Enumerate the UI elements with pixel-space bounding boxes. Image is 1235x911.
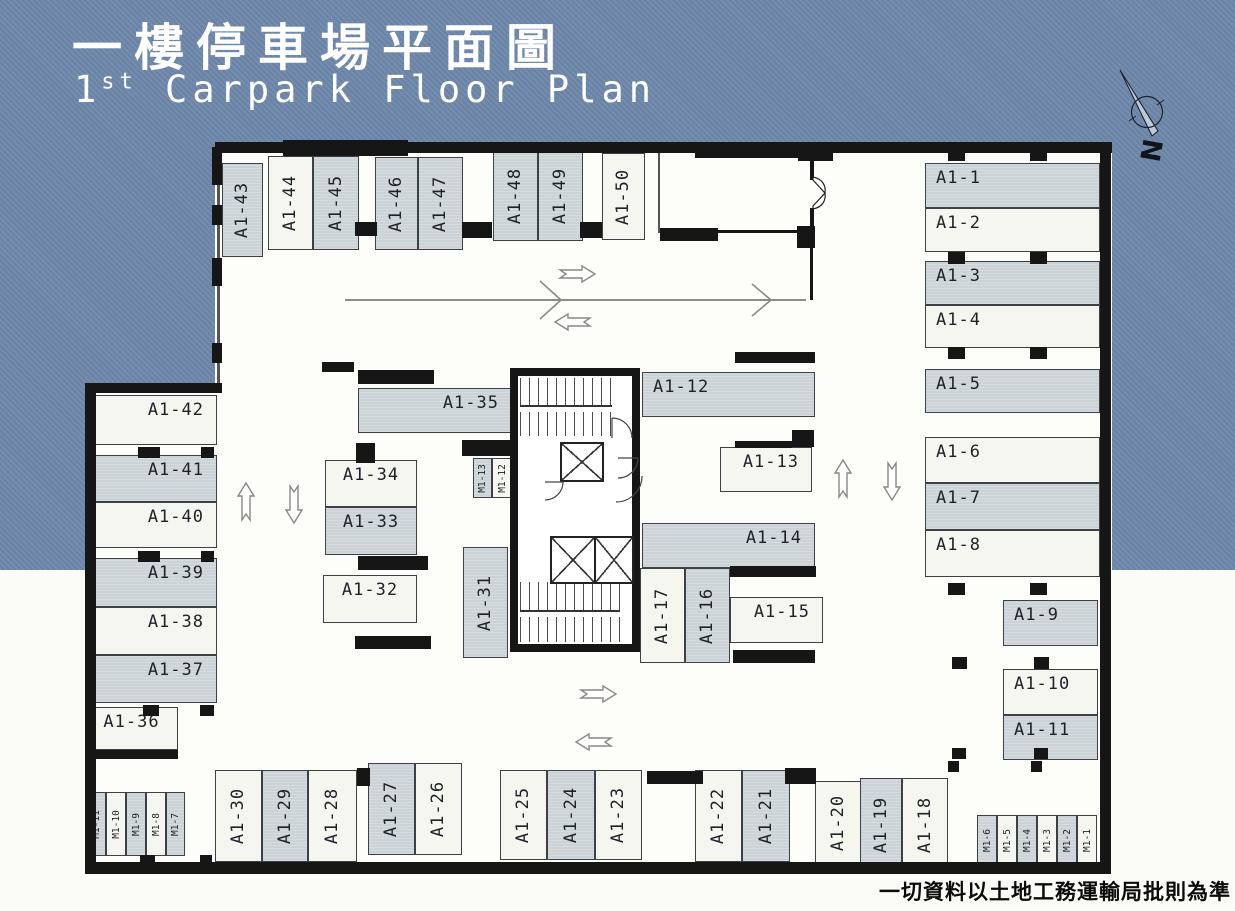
parking-space-label: A1-46 (387, 175, 407, 231)
parking-space-A1-15: A1-15 (730, 597, 823, 643)
wall-column-stub (322, 362, 354, 372)
parking-space-A1-7: A1-7 (925, 483, 1100, 530)
parking-space-label: M1-7 (170, 813, 181, 836)
parking-space-label: A1-20 (829, 795, 849, 851)
wall-column-stub (733, 650, 815, 663)
parking-space-label: A1-36 (86, 712, 177, 732)
parking-space-A1-4: A1-4 (925, 305, 1100, 348)
wall-segment (85, 862, 1111, 874)
wall-column-stub (948, 583, 965, 595)
parking-space-A1-43: A1-43 (222, 163, 263, 257)
parking-space-A1-3: A1-3 (925, 261, 1100, 305)
parking-space-A1-16: A1-16 (685, 568, 730, 663)
wall-column-stub (948, 252, 965, 264)
wall-column-stub (792, 430, 814, 447)
parking-space-A1-38: A1-38 (88, 607, 217, 655)
wall-column-stub (201, 551, 214, 562)
parking-space-label: A1-35 (443, 393, 499, 413)
parking-space-label: A1-6 (936, 442, 981, 462)
parking-space-A1-29: A1-29 (262, 770, 308, 862)
wall-column-stub (212, 258, 222, 286)
wall-column-stub (1030, 252, 1047, 264)
parking-space-M1-7: M1-7 (166, 792, 185, 856)
wall-column-stub (355, 636, 431, 649)
parking-space-label: M1-4 (1022, 829, 1033, 852)
wall-column-stub (1031, 761, 1042, 772)
parking-space-M1-4: M1-4 (1017, 815, 1037, 865)
parking-space-label: A1-24 (561, 787, 581, 843)
wall-column-stub (140, 855, 155, 867)
wall-column-stub (283, 140, 408, 156)
parking-space-A1-27: A1-27 (368, 763, 415, 855)
parking-space-M1-1: M1-1 (1077, 815, 1097, 865)
parking-space-label: A1-43 (233, 182, 253, 238)
title-number: 1 (74, 68, 101, 111)
wall-column-stub (948, 150, 965, 161)
parking-space-A1-48: A1-48 (493, 151, 538, 241)
parking-space-A1-39: A1-39 (88, 558, 217, 607)
parking-space-label: M1-3 (1042, 829, 1053, 852)
parking-space-label: A1-8 (936, 535, 981, 555)
wall-column-stub (212, 205, 222, 225)
parking-space-A1-37: A1-37 (88, 655, 217, 703)
parking-space-label: A1-47 (431, 175, 451, 231)
parking-space-A1-8: A1-8 (925, 530, 1100, 577)
parking-space-label: A1-41 (148, 460, 204, 480)
stairwell-bottom (520, 582, 620, 642)
parking-space-label: M1-10 (111, 810, 122, 839)
parking-space-label: A1-34 (326, 465, 416, 485)
parking-space-A1-14: A1-14 (642, 523, 815, 568)
parking-space-label: A1-11 (1014, 720, 1070, 740)
parking-space-A1-25: A1-25 (500, 770, 547, 860)
page-title-english: 1st Carpark Floor Plan (74, 68, 656, 111)
wall-column-stub (355, 222, 377, 236)
parking-space-A1-1: A1-1 (925, 163, 1100, 208)
parking-space-label: A1-37 (148, 660, 204, 680)
wall-column-stub (358, 556, 428, 570)
parking-space-label: A1-45 (326, 175, 346, 231)
wall-column-stub (1030, 150, 1047, 161)
elevator-2 (550, 536, 596, 584)
title-text: Carpark Floor Plan (138, 68, 656, 111)
elevator-3 (594, 536, 634, 584)
wall-column-stub (785, 768, 816, 784)
parking-space-A1-45: A1-45 (313, 156, 359, 250)
parking-space-A1-34: A1-34 (325, 460, 417, 507)
parking-space-label: A1-44 (281, 175, 301, 231)
parking-space-A1-49: A1-49 (538, 151, 583, 241)
title-ordinal-suffix: st (101, 70, 138, 95)
parking-space-M1-3: M1-3 (1037, 815, 1057, 865)
parking-space-label: A1-23 (609, 787, 629, 843)
wall-column-stub (138, 447, 160, 458)
parking-space-A1-41: A1-41 (88, 455, 217, 502)
parking-space-label: M1-12 (497, 464, 508, 493)
wall-column-stub (200, 855, 212, 867)
parking-space-label: A1-29 (275, 788, 295, 844)
parking-space-M1-12: M1-12 (492, 458, 512, 498)
parking-space-label: A1-33 (326, 512, 416, 532)
parking-space-A1-17: A1-17 (640, 568, 685, 663)
parking-space-label: A1-4 (936, 310, 981, 330)
parking-space-label: M1-2 (1062, 829, 1073, 852)
wall-column-stub (1034, 657, 1049, 669)
wall-column-stub (580, 222, 602, 238)
wall-column-stub (1030, 347, 1047, 359)
parking-space-label: A1-27 (382, 781, 402, 837)
wall-column-stub (462, 440, 512, 456)
parking-space-label: M1-8 (151, 813, 162, 836)
parking-space-M1-8: M1-8 (146, 792, 166, 856)
parking-space-label: A1-1 (936, 168, 981, 188)
parking-space-M1-10: M1-10 (106, 792, 126, 856)
wall-column-stub (462, 222, 492, 238)
parking-space-label: A1-39 (148, 563, 204, 583)
parking-space-A1-19: A1-19 (860, 778, 902, 872)
elevator-1 (560, 442, 604, 482)
parking-space-A1-12: A1-12 (642, 372, 815, 417)
parking-space-label: A1-42 (148, 400, 204, 420)
wall-column-stub (735, 441, 792, 448)
wall-segment (85, 383, 96, 874)
parking-space-label: A1-49 (551, 168, 571, 224)
parking-space-label: A1-31 (476, 574, 496, 630)
wall-column-stub (1034, 748, 1048, 759)
parking-space-A1-10: A1-10 (1003, 669, 1098, 715)
parking-space-label: M1-5 (1002, 829, 1013, 852)
parking-space-M1-5: M1-5 (997, 815, 1017, 865)
parking-space-A1-23: A1-23 (595, 770, 642, 860)
wall-column-stub (1030, 583, 1047, 595)
parking-space-A1-36: A1-36 (85, 707, 178, 750)
parking-space-label: A1-38 (148, 612, 204, 632)
parking-space-label: A1-17 (653, 587, 673, 643)
parking-space-label: A1-16 (698, 587, 718, 643)
stairwell-top (520, 378, 612, 436)
parking-space-A1-46: A1-46 (375, 157, 418, 250)
parking-space-label: A1-25 (514, 787, 534, 843)
parking-space-A1-35: A1-35 (358, 388, 512, 433)
parking-space-label: A1-3 (936, 266, 981, 286)
parking-space-label: A1-9 (1014, 605, 1059, 625)
parking-space-A1-20: A1-20 (815, 781, 862, 865)
parking-space-label: A1-22 (709, 788, 729, 844)
wall-column-stub (952, 657, 967, 669)
wall-column-stub (85, 750, 178, 759)
building-core (510, 368, 640, 652)
wall-column-stub (357, 768, 370, 786)
parking-space-A1-18: A1-18 (902, 778, 948, 872)
parking-space-label: A1-21 (756, 788, 776, 844)
parking-space-label: A1-2 (936, 213, 981, 233)
parking-space-M1-13: M1-13 (473, 458, 492, 498)
parking-space-label: A1-26 (429, 781, 449, 837)
wall-column-stub (200, 705, 214, 716)
wall-column-stub (356, 443, 375, 463)
wall-column-stub (810, 247, 813, 300)
parking-space-label: A1-19 (871, 797, 891, 853)
parking-space-M1-9: M1-9 (126, 792, 146, 856)
wall-column-stub (138, 551, 160, 562)
parking-space-A1-33: A1-33 (325, 507, 417, 555)
parking-space-A1-30: A1-30 (215, 770, 262, 862)
parking-space-A1-32: A1-32 (323, 575, 417, 623)
parking-space-label: A1-40 (148, 507, 204, 527)
parking-space-A1-47: A1-47 (418, 157, 463, 250)
parking-space-A1-13: A1-13 (720, 447, 812, 492)
parking-space-label: A1-28 (323, 788, 343, 844)
wall-column-stub (358, 370, 434, 384)
parking-space-A1-2: A1-2 (925, 208, 1100, 252)
wall-segment (1100, 142, 1111, 873)
wall-column-stub (948, 347, 965, 359)
parking-space-label: M1-6 (982, 829, 993, 852)
wall-column-stub (201, 447, 214, 458)
wall-column-stub (212, 343, 222, 363)
wall-column-stub (730, 566, 816, 577)
parking-space-M1-6: M1-6 (977, 815, 997, 865)
parking-space-A1-21: A1-21 (742, 770, 790, 862)
wall-column-stub (735, 352, 815, 363)
parking-space-label: A1-18 (915, 797, 935, 853)
parking-space-label: A1-30 (229, 788, 249, 844)
parking-space-A1-31: A1-31 (463, 547, 508, 658)
parking-space-A1-42: A1-42 (88, 395, 217, 445)
parking-space-label: A1-5 (936, 374, 981, 394)
parking-space-A1-44: A1-44 (268, 156, 313, 250)
parking-space-label: M1-13 (477, 464, 488, 493)
parking-space-A1-6: A1-6 (925, 437, 1100, 483)
wall-column-stub (952, 748, 966, 759)
parking-space-label: A1-48 (506, 168, 526, 224)
parking-space-label: A1-32 (324, 580, 416, 600)
parking-space-M1-2: M1-2 (1057, 815, 1077, 865)
parking-space-label: A1-10 (1014, 674, 1070, 694)
parking-space-label: A1-50 (614, 168, 634, 224)
parking-space-label: M1-1 (1082, 829, 1093, 852)
wall-column-stub (948, 761, 959, 772)
parking-space-A1-5: A1-5 (925, 369, 1100, 413)
parking-space-label: A1-13 (743, 452, 799, 472)
wall-column-stub (212, 147, 222, 185)
parking-space-A1-9: A1-9 (1003, 600, 1098, 646)
parking-space-label: A1-15 (754, 602, 810, 622)
parking-space-label: A1-14 (746, 528, 802, 548)
parking-space-A1-24: A1-24 (547, 770, 595, 860)
parking-space-label: A1-7 (936, 488, 981, 508)
wall-segment (85, 383, 222, 393)
parking-space-label: M1-9 (131, 813, 142, 836)
wall-column-stub (143, 705, 159, 716)
parking-space-A1-11: A1-11 (1003, 715, 1098, 760)
disclaimer-text: 一切資料以土地工務運輸局批則為準 (879, 876, 1231, 906)
carpark-floor-plan-page: 一樓停車場平面圖 1st Carpark Floor Plan A1-43A1-… (0, 0, 1235, 911)
parking-space-label: A1-12 (653, 377, 709, 397)
parking-space-A1-50: A1-50 (602, 153, 645, 240)
parking-space-A1-26: A1-26 (415, 763, 462, 855)
parking-space-A1-28: A1-28 (308, 770, 357, 862)
parking-space-A1-40: A1-40 (88, 502, 217, 548)
entrance-room (658, 153, 816, 233)
wall-column-stub (647, 771, 703, 784)
